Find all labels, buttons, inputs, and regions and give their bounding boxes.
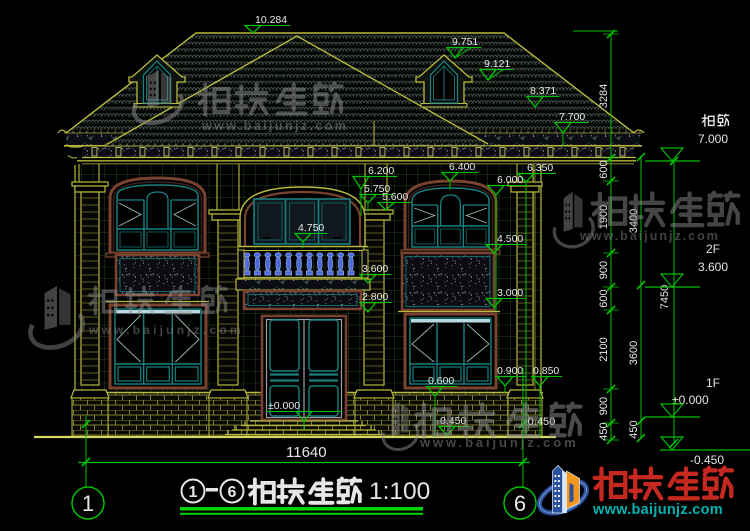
svg-text:6: 6 — [228, 484, 237, 501]
svg-text:6: 6 — [514, 491, 526, 516]
svg-text:2.800: 2.800 — [362, 291, 388, 303]
svg-text:9.121: 9.121 — [484, 58, 510, 70]
svg-text:900: 900 — [598, 261, 610, 279]
svg-text:0.850: 0.850 — [533, 365, 559, 377]
svg-text:www.baijunjz.com: www.baijunjz.com — [88, 323, 244, 337]
svg-text:11640: 11640 — [286, 444, 327, 461]
svg-text:600: 600 — [598, 160, 610, 178]
svg-text:6.200: 6.200 — [368, 165, 394, 177]
svg-text:1:100: 1:100 — [369, 478, 430, 505]
svg-text:9.751: 9.751 — [452, 36, 478, 48]
svg-text:2F: 2F — [706, 242, 720, 256]
svg-text:4.750: 4.750 — [298, 222, 324, 234]
svg-text:-0.450: -0.450 — [690, 453, 724, 467]
svg-text:5.600: 5.600 — [382, 191, 408, 203]
svg-text:8.371: 8.371 — [530, 85, 556, 97]
svg-text:900: 900 — [598, 397, 610, 415]
svg-text:www.baijunjz.com: www.baijunjz.com — [592, 502, 723, 518]
svg-text:7.700: 7.700 — [559, 111, 585, 123]
svg-text:10.284: 10.284 — [255, 14, 287, 26]
svg-text:3600: 3600 — [628, 341, 640, 365]
svg-text:600: 600 — [598, 289, 610, 307]
svg-text:1F: 1F — [706, 376, 720, 390]
svg-text:450: 450 — [598, 422, 610, 440]
svg-text:6.350: 6.350 — [527, 162, 553, 174]
svg-text:www.baijunjz.com: www.baijunjz.com — [201, 119, 348, 133]
svg-text:0.600: 0.600 — [428, 375, 454, 387]
svg-text:6.000: 6.000 — [497, 174, 523, 186]
svg-text:1: 1 — [189, 484, 198, 501]
svg-text:6.400: 6.400 — [449, 161, 475, 173]
svg-text:2100: 2100 — [598, 337, 610, 361]
svg-text:3.600: 3.600 — [362, 263, 388, 275]
svg-text:±0.000: ±0.000 — [672, 393, 709, 407]
svg-text:7.000: 7.000 — [698, 132, 728, 146]
svg-text:4.500: 4.500 — [497, 233, 523, 245]
svg-text:www.baijunjz.com: www.baijunjz.com — [579, 229, 720, 243]
svg-text:3284: 3284 — [598, 84, 610, 108]
svg-text:7450: 7450 — [659, 285, 671, 309]
svg-text:0.900: 0.900 — [497, 365, 523, 377]
svg-text:3.000: 3.000 — [497, 287, 523, 299]
svg-text:450: 450 — [628, 420, 640, 438]
svg-text:www.baijunjz.com: www.baijunjz.com — [419, 435, 579, 450]
svg-text:3.600: 3.600 — [698, 260, 728, 274]
svg-text:1: 1 — [82, 491, 94, 516]
svg-text:±0.000: ±0.000 — [268, 400, 300, 412]
